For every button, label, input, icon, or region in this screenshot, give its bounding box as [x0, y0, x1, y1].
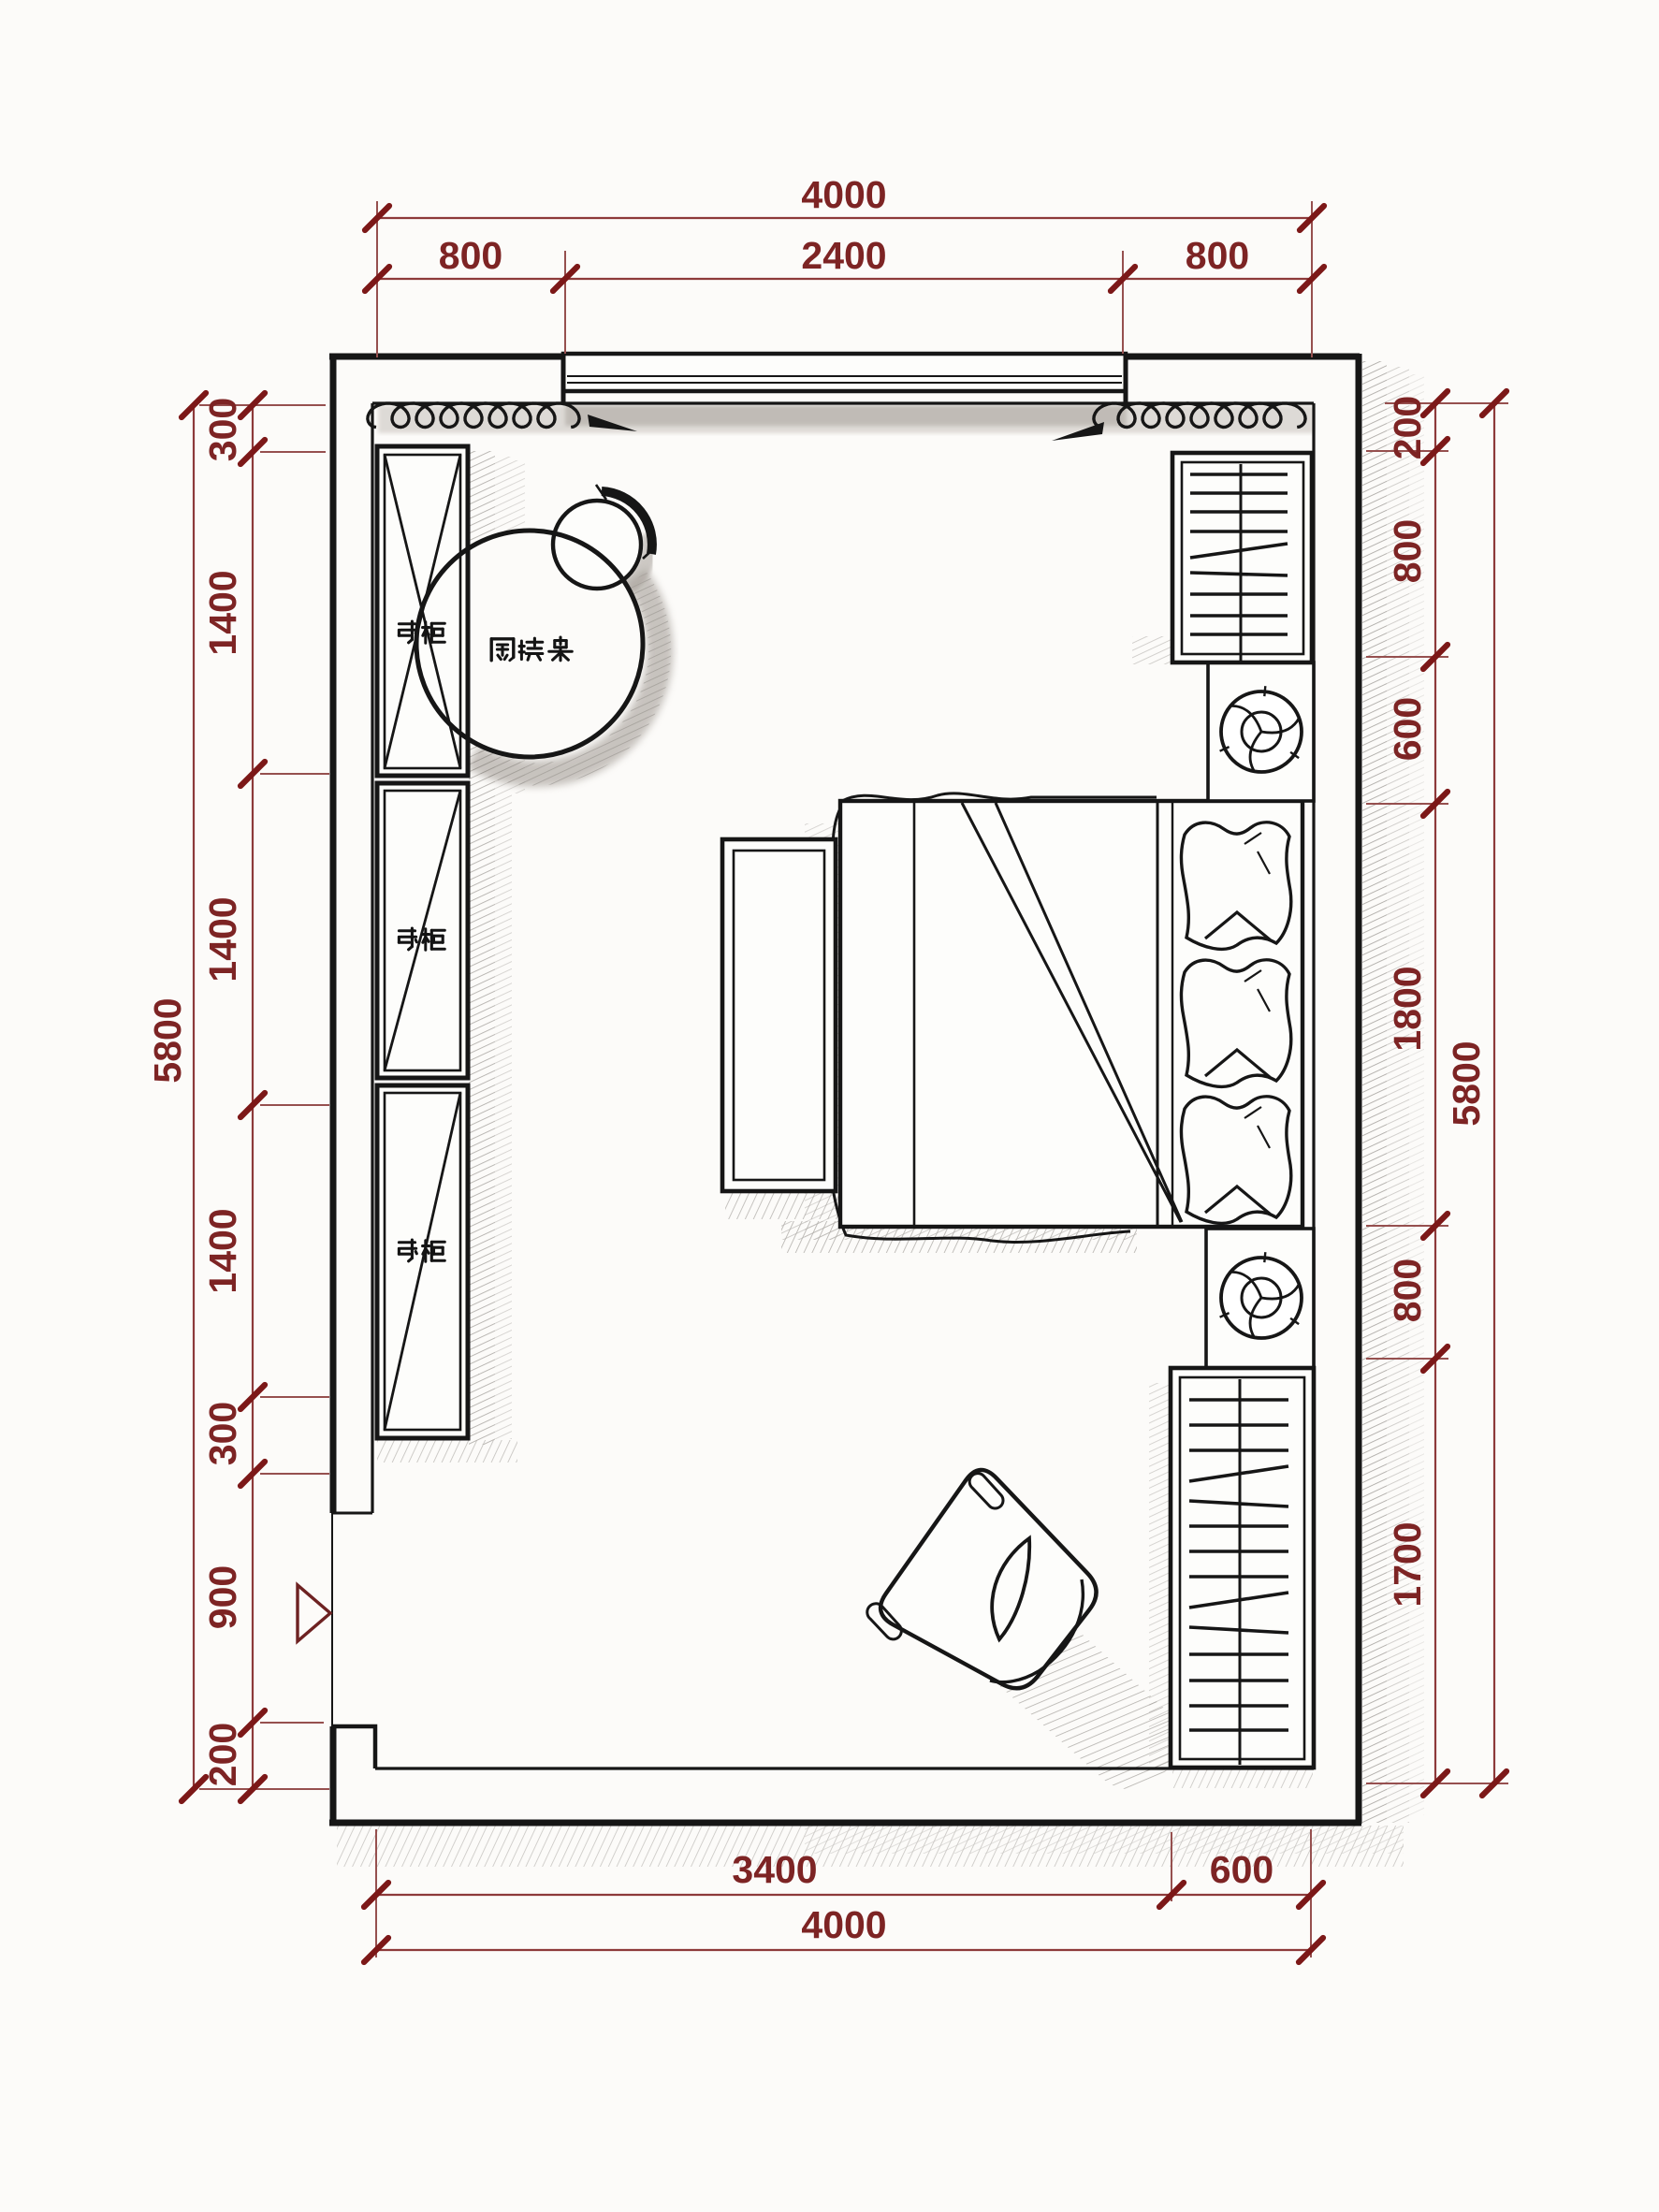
svg-text:2400: 2400 — [801, 234, 886, 277]
svg-text:600: 600 — [1386, 697, 1429, 761]
svg-text:800: 800 — [1386, 1259, 1429, 1322]
svg-text:300: 300 — [201, 398, 244, 461]
svg-text:200: 200 — [201, 1723, 244, 1786]
svg-text:4000: 4000 — [801, 173, 886, 216]
svg-text:600: 600 — [1210, 1848, 1273, 1891]
svg-text:1800: 1800 — [1386, 966, 1429, 1051]
svg-text:1400: 1400 — [201, 1208, 244, 1293]
svg-text:5800: 5800 — [1445, 1041, 1488, 1126]
svg-text:1700: 1700 — [1386, 1521, 1429, 1607]
svg-text:4000: 4000 — [801, 1903, 886, 1946]
svg-text:800: 800 — [439, 234, 502, 277]
svg-text:1400: 1400 — [201, 896, 244, 982]
svg-text:800: 800 — [1386, 519, 1429, 583]
svg-text:800: 800 — [1186, 234, 1249, 277]
svg-text:300: 300 — [201, 1402, 244, 1465]
svg-text:200: 200 — [1386, 396, 1429, 459]
svg-text:900: 900 — [201, 1565, 244, 1629]
svg-text:1400: 1400 — [201, 570, 244, 655]
svg-text:5800: 5800 — [146, 997, 189, 1083]
svg-text:3400: 3400 — [732, 1848, 817, 1891]
